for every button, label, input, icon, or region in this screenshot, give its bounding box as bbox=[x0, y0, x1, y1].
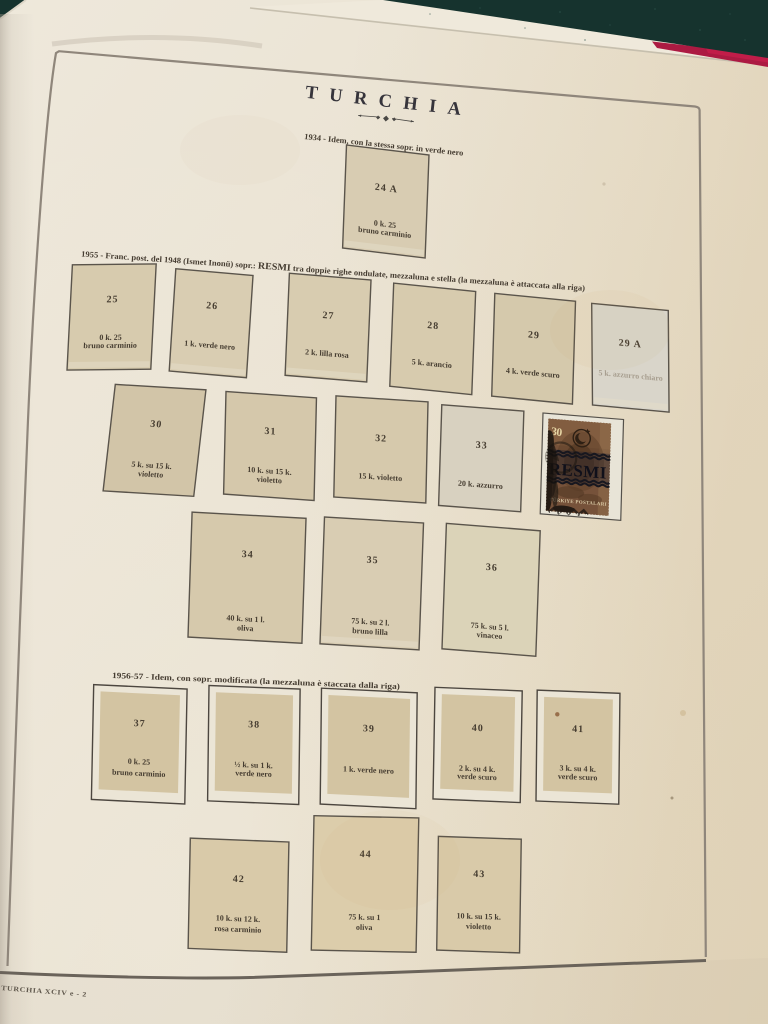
svg-text:10 k. su 15 k.: 10 k. su 15 k. bbox=[456, 911, 500, 921]
svg-text:25: 25 bbox=[106, 294, 119, 305]
svg-text:32: 32 bbox=[375, 433, 387, 445]
svg-text:oliva: oliva bbox=[237, 623, 254, 633]
svg-text:36: 36 bbox=[486, 562, 498, 574]
svg-text:39: 39 bbox=[363, 723, 375, 735]
svg-text:violetto: violetto bbox=[137, 469, 163, 479]
svg-text:rosa carminio: rosa carminio bbox=[214, 924, 261, 935]
svg-text:26: 26 bbox=[206, 300, 219, 312]
svg-text:10 k. su 12 k.: 10 k. su 12 k. bbox=[216, 913, 261, 924]
svg-text:verde nero: verde nero bbox=[235, 768, 272, 778]
svg-text:41: 41 bbox=[572, 724, 584, 735]
svg-text:oliva: oliva bbox=[356, 923, 373, 932]
svg-text:38: 38 bbox=[248, 719, 260, 730]
svg-text:33: 33 bbox=[476, 440, 488, 452]
svg-text:42: 42 bbox=[233, 874, 245, 885]
svg-text:verde scuro: verde scuro bbox=[558, 772, 598, 783]
svg-text:75 k. su 1: 75 k. su 1 bbox=[348, 912, 380, 922]
svg-text:violetto: violetto bbox=[466, 922, 491, 932]
svg-text:verde scuro: verde scuro bbox=[457, 772, 497, 783]
svg-text:43: 43 bbox=[473, 869, 485, 880]
svg-text:0 k. 25: 0 k. 25 bbox=[128, 757, 151, 767]
svg-text:29: 29 bbox=[528, 329, 540, 341]
svg-text:28: 28 bbox=[427, 320, 439, 332]
svg-text:30: 30 bbox=[150, 419, 163, 431]
svg-text:35: 35 bbox=[366, 555, 378, 567]
svg-text:27: 27 bbox=[322, 310, 334, 322]
svg-text:31: 31 bbox=[264, 426, 276, 438]
svg-text:34: 34 bbox=[242, 549, 254, 561]
svg-text:bruno carminio: bruno carminio bbox=[83, 341, 137, 351]
svg-text:37: 37 bbox=[134, 718, 146, 730]
svg-text:40: 40 bbox=[472, 723, 484, 734]
svg-text:violetto: violetto bbox=[257, 475, 282, 486]
